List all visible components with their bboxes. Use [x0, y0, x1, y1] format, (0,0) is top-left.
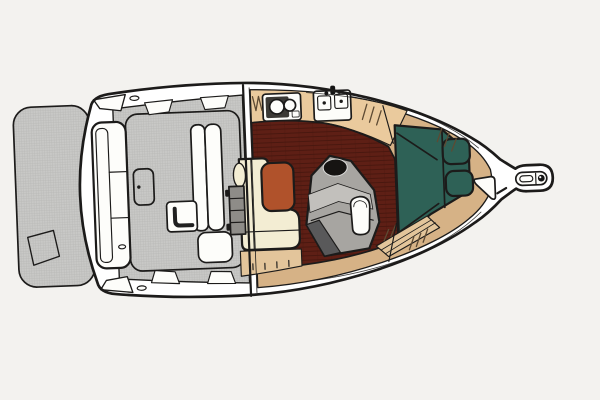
settee-armrest — [233, 163, 246, 187]
settee-backrest-cushion — [261, 162, 295, 211]
walkway-pad — [207, 270, 235, 284]
stove-control — [292, 111, 299, 117]
stove — [262, 93, 301, 121]
bench-seat-cushion — [204, 124, 224, 231]
walkway-pad — [151, 270, 180, 285]
berth-pillow — [445, 170, 473, 196]
head-basin — [323, 159, 348, 177]
ladder-bracket — [225, 190, 229, 197]
toilet — [350, 196, 371, 235]
walkway-pad — [200, 96, 228, 110]
ladder-bracket — [226, 224, 230, 231]
stove-burner — [284, 99, 296, 111]
stove-burner — [269, 99, 284, 114]
anchor-pulpit — [516, 171, 547, 185]
bench-corner-cushion — [198, 232, 233, 263]
boat-floorplan-image — [0, 0, 600, 400]
